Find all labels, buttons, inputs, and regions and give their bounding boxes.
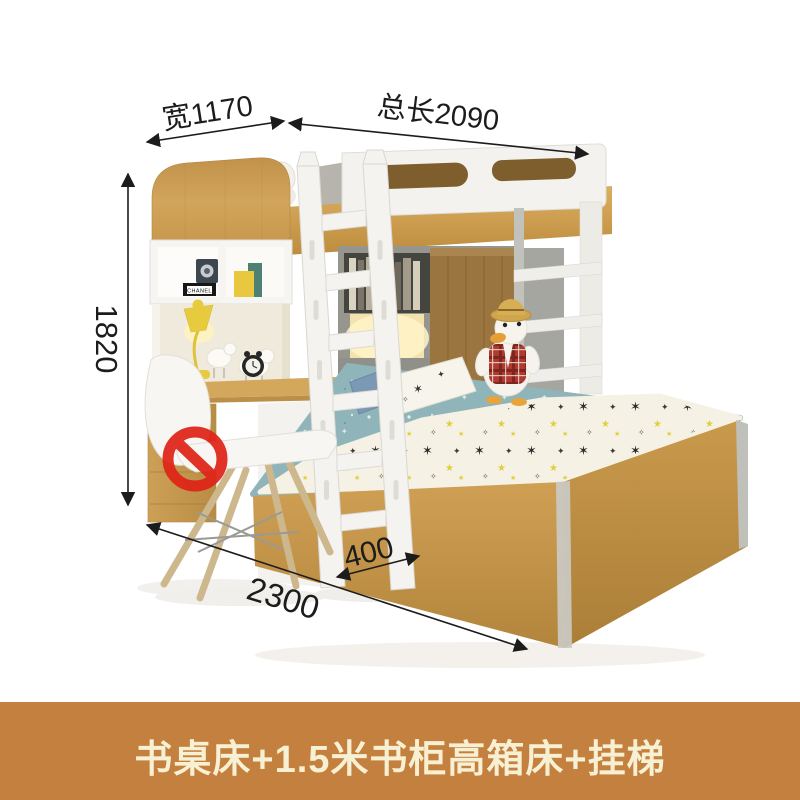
dimension-label-height: 1820	[89, 305, 124, 374]
corner-trim	[556, 481, 572, 648]
dimension-label-length: 总长2090	[375, 90, 501, 138]
product-image: ✶ ★ ✦ ✧ ★ ✦	[0, 0, 800, 800]
chanel-book-label: CHANEL	[187, 288, 212, 294]
bunk-bed-scene: ✶ ★ ✦ ✧ ★ ✦	[0, 0, 800, 702]
caption-banner: 书桌床+1.5米书柜高箱床+挂梯	[0, 702, 800, 800]
guard-rail-cutout	[492, 158, 577, 182]
product-caption: 书桌床+1.5米书柜高箱床+挂梯	[134, 720, 665, 783]
arched-wood-headboard	[152, 158, 290, 247]
yellow-box	[234, 271, 254, 297]
dimension-label-width: 宽1170	[160, 89, 255, 136]
